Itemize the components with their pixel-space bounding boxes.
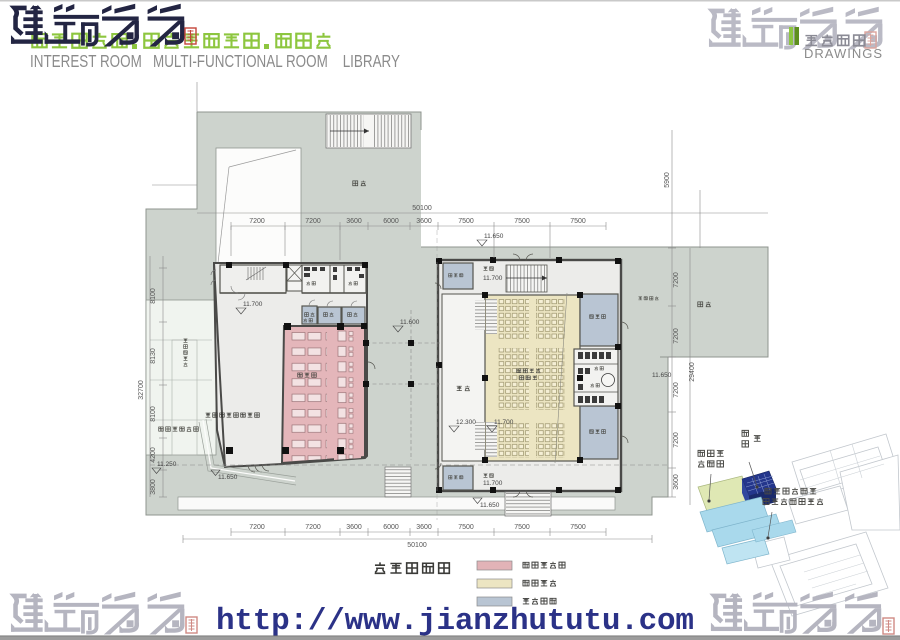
svg-text:INTEREST ROOM MULTI-FUNCTION: INTEREST ROOM MULTI-FUNCTIONAL ROOM LIBR… bbox=[30, 51, 400, 71]
svg-text:7200: 7200 bbox=[305, 218, 321, 225]
svg-text:3600: 3600 bbox=[346, 218, 362, 225]
svg-text:7500: 7500 bbox=[570, 524, 586, 531]
svg-text:6000: 6000 bbox=[383, 218, 399, 225]
svg-text:12.300: 12.300 bbox=[456, 419, 476, 426]
svg-text:11.700: 11.700 bbox=[483, 275, 503, 282]
svg-text:11.700: 11.700 bbox=[494, 419, 514, 426]
svg-text:8100: 8100 bbox=[150, 288, 157, 304]
svg-text:11.700: 11.700 bbox=[243, 301, 263, 308]
svg-text:11.700: 11.700 bbox=[483, 480, 503, 487]
svg-text:11.650: 11.650 bbox=[652, 372, 672, 379]
svg-text:DRAWINGS: DRAWINGS bbox=[804, 46, 883, 61]
svg-text:7500: 7500 bbox=[458, 524, 474, 531]
svg-text:3600: 3600 bbox=[416, 218, 432, 225]
svg-text:7200: 7200 bbox=[249, 524, 265, 531]
svg-text:50100: 50100 bbox=[407, 542, 427, 549]
svg-text:32700: 32700 bbox=[138, 380, 145, 400]
svg-text:11.600: 11.600 bbox=[400, 319, 420, 326]
svg-text:11.250: 11.250 bbox=[157, 461, 177, 468]
svg-text:7200: 7200 bbox=[673, 432, 680, 448]
svg-text:3600: 3600 bbox=[346, 524, 362, 531]
svg-text:29400: 29400 bbox=[689, 362, 696, 382]
svg-text:7200: 7200 bbox=[249, 218, 265, 225]
svg-text:7200: 7200 bbox=[673, 328, 680, 344]
svg-text:8100: 8100 bbox=[150, 406, 157, 422]
svg-text:11.650: 11.650 bbox=[218, 474, 238, 481]
svg-text:7200: 7200 bbox=[673, 272, 680, 288]
svg-text:3600: 3600 bbox=[416, 524, 432, 531]
svg-text:50100: 50100 bbox=[412, 205, 432, 212]
svg-text:7500: 7500 bbox=[570, 218, 586, 225]
svg-text:5900: 5900 bbox=[664, 172, 671, 188]
svg-text:11.650: 11.650 bbox=[484, 233, 504, 240]
svg-text:6000: 6000 bbox=[383, 524, 399, 531]
svg-text:7200: 7200 bbox=[305, 524, 321, 531]
svg-text:11.650: 11.650 bbox=[480, 502, 500, 509]
svg-text:7200: 7200 bbox=[673, 382, 680, 398]
svg-text:3600: 3600 bbox=[673, 474, 680, 490]
svg-text:7500: 7500 bbox=[514, 524, 530, 531]
svg-text:4200: 4200 bbox=[150, 447, 157, 463]
svg-text:3800: 3800 bbox=[150, 479, 157, 495]
svg-text:7500: 7500 bbox=[514, 218, 530, 225]
svg-text:7500: 7500 bbox=[458, 218, 474, 225]
svg-text:8130: 8130 bbox=[150, 348, 157, 364]
svg-text:http://www.jianzhututu.com: http://www.jianzhututu.com bbox=[216, 604, 694, 639]
